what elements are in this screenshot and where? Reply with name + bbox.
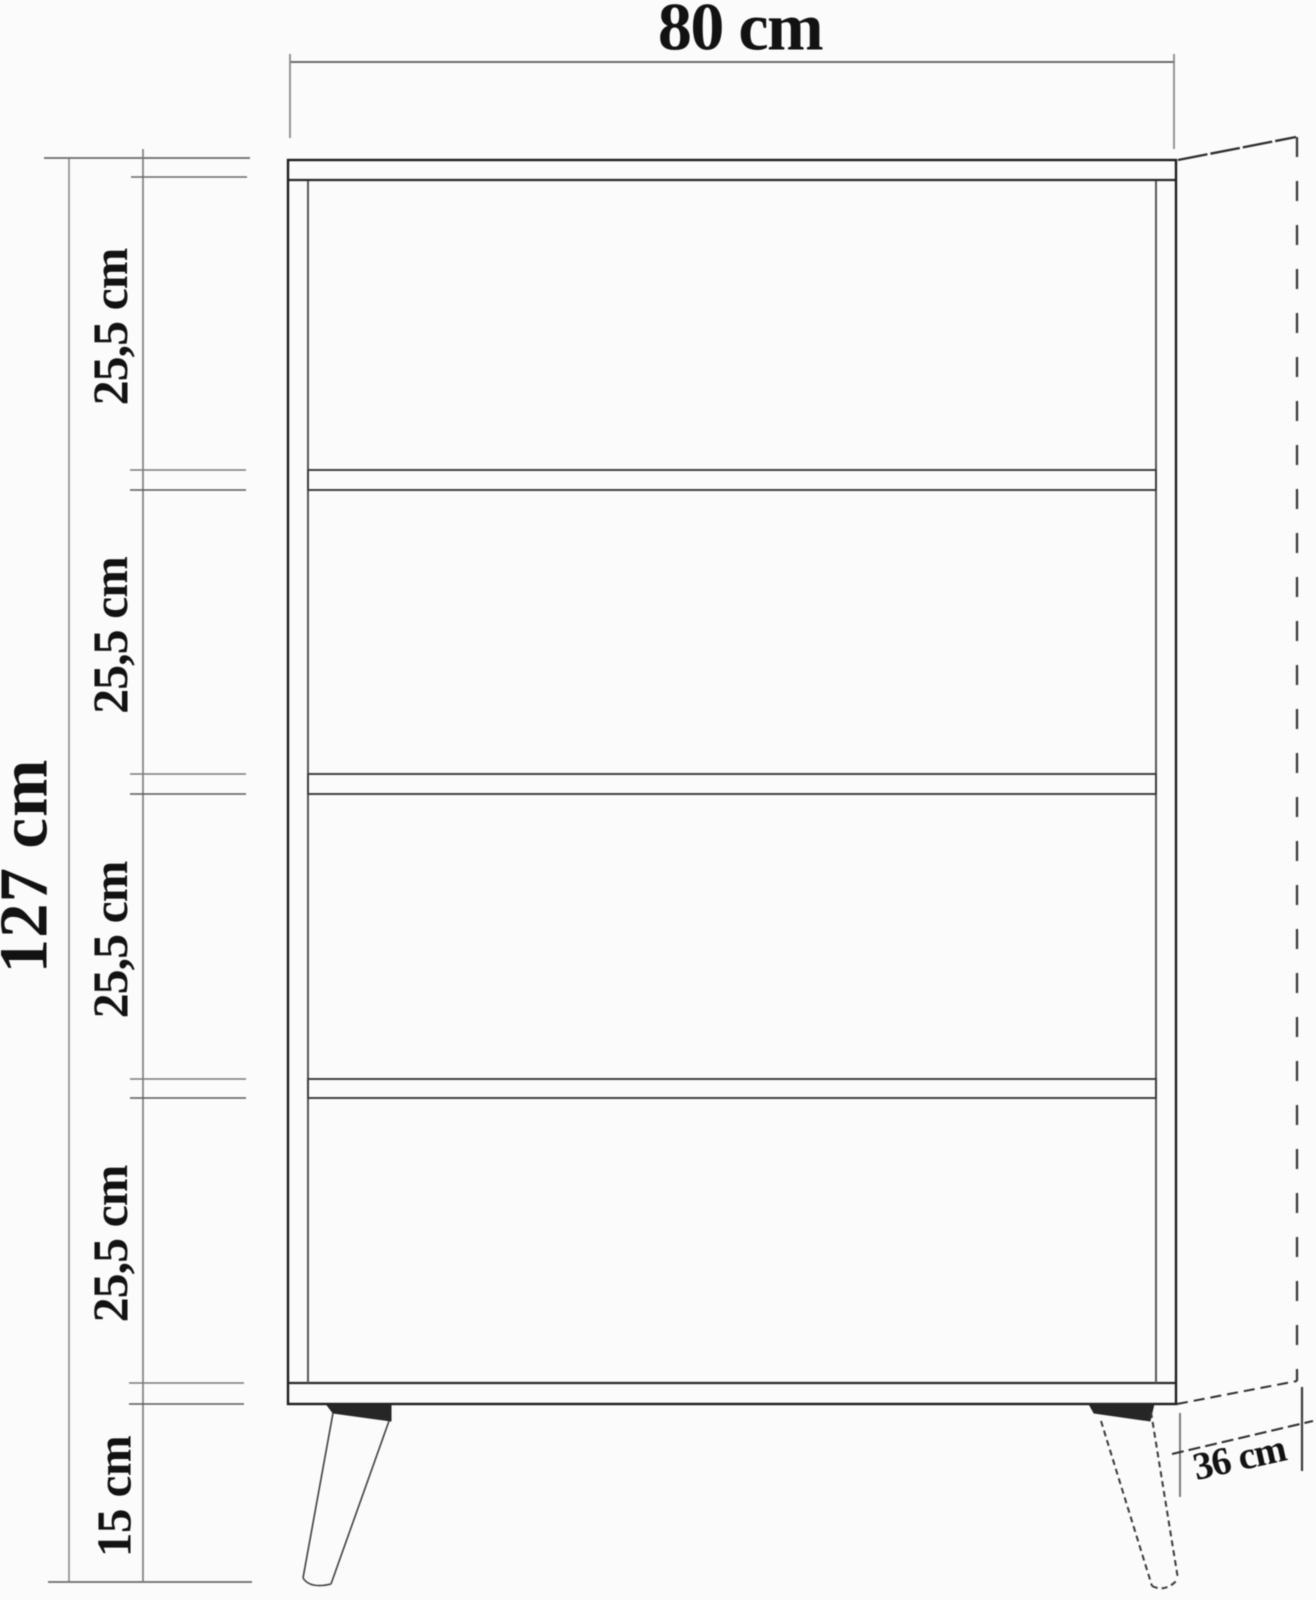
svg-text:25,5 cm: 25,5 cm [82,1165,138,1322]
svg-text:80 cm: 80 cm [658,0,823,65]
svg-text:25,5 cm: 25,5 cm [82,557,138,714]
svg-text:15 cm: 15 cm [87,1436,142,1557]
svg-text:25,5 cm: 25,5 cm [82,861,138,1018]
svg-text:25,5 cm: 25,5 cm [82,248,138,405]
svg-text:127 cm: 127 cm [0,759,62,974]
